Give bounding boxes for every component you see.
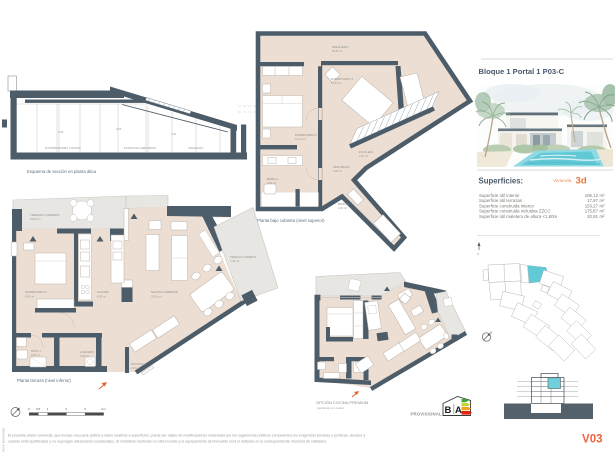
svg-text:TERRAZA CUBIERTA: TERRAZA CUBIERTA — [30, 213, 60, 217]
svg-text:B: B — [445, 405, 452, 416]
svg-text:TERRAZA CUBIERTA: TERRAZA CUBIERTA — [230, 255, 257, 259]
svg-text:COCINA: COCINA — [97, 290, 109, 294]
svg-text:2.50: 2.50 — [58, 130, 64, 134]
svg-text:MALETERO: MALETERO — [332, 45, 349, 49]
svg-text:El presente plano comercial, q: El presente plano comercial, que incluye… — [8, 434, 365, 438]
svg-text:2,43 m²: 2,43 m² — [131, 366, 140, 370]
svg-text:Vivienda: Vivienda — [553, 178, 572, 184]
svg-text:8,39 m²: 8,39 m² — [97, 295, 106, 299]
svg-text:3,28 m²: 3,28 m² — [333, 169, 342, 173]
svg-text:Superficies:: Superficies: — [479, 177, 524, 186]
svg-text:Planta terraza (nivel inferior: Planta terraza (nivel inferior) — [17, 378, 72, 383]
svg-text:3d: 3d — [576, 176, 587, 187]
svg-text:(opcional con coste): (opcional con coste) — [317, 406, 344, 410]
svg-text:7,02 m²: 7,02 m² — [230, 259, 239, 263]
svg-text:A: A — [455, 405, 462, 416]
svg-text:15,06 m²: 15,06 m² — [30, 217, 41, 221]
svg-text:V03: V03 — [582, 434, 602, 446]
svg-text:m²: m² — [600, 214, 606, 219]
svg-text:VESTIBULO: VESTIBULO — [131, 362, 146, 366]
svg-text:BAÑO 3: BAÑO 3 — [338, 201, 349, 206]
svg-text:4 m: 4 m — [101, 407, 107, 411]
svg-text:Bloque 1 Portal 1 P03-C: Bloque 1 Portal 1 P03-C — [479, 67, 565, 76]
svg-text:DORMITORIO 1: DORMITORIO 1 — [295, 133, 317, 137]
svg-text:10,24 m²: 10,24 m² — [295, 137, 306, 141]
svg-text:ESTANCIAS HABITABLES: ESTANCIAS HABITABLES — [124, 146, 156, 150]
svg-text:OPCIÓN COCINA PREMIUM: OPCIÓN COCINA PREMIUM — [316, 400, 368, 405]
svg-text:MALETERO: MALETERO — [189, 146, 204, 150]
svg-text:2.66: 2.66 — [116, 127, 122, 131]
svg-text:32,81 m²: 32,81 m² — [151, 295, 162, 299]
svg-text:Esquema de sección en planta á: Esquema de sección en planta ática — [27, 169, 97, 174]
svg-text:BAÑO 2: BAÑO 2 — [267, 176, 278, 181]
svg-text:4,40 m²: 4,40 m² — [267, 181, 276, 185]
svg-text:1.50: 1.50 — [171, 132, 177, 136]
svg-text:30,87 m²: 30,87 m² — [332, 49, 343, 53]
svg-text:P03-C V03 PLANO: P03-C V03 PLANO — [2, 427, 6, 452]
svg-text:8,56 m²: 8,56 m² — [25, 295, 34, 299]
svg-text:Planta bajo cubierta (nivel su: Planta bajo cubierta (nivel superior) — [257, 218, 325, 223]
svg-text:0,5: 0,5 — [36, 407, 41, 411]
svg-text:3,01 m²: 3,01 m² — [338, 206, 347, 210]
svg-text:ESCALERA: ESCALERA — [359, 150, 374, 154]
svg-text:DORMITORIO 2: DORMITORIO 2 — [25, 290, 47, 294]
svg-text:20,91: 20,91 — [587, 214, 598, 219]
svg-text:DORMITORIO 3: DORMITORIO 3 — [331, 77, 353, 81]
svg-text:SALÓN-COMEDOR: SALÓN-COMEDOR — [151, 289, 179, 294]
svg-text:N: N — [490, 331, 492, 335]
svg-text:VESTIBULO: VESTIBULO — [333, 165, 351, 169]
svg-text:2,87 m²: 2,87 m² — [359, 154, 368, 158]
svg-text:N: N — [477, 252, 479, 256]
svg-text:1,80 m²: 1,80 m² — [80, 354, 89, 358]
svg-text:PROVISIONAL: PROVISIONAL — [411, 412, 442, 417]
svg-text:3,05 m²: 3,05 m² — [31, 353, 40, 357]
svg-text:13,61 m²: 13,61 m² — [331, 81, 342, 85]
svg-text:cuando estén justificadas y no: cuando estén justificadas y no supongan … — [8, 440, 327, 444]
svg-text:Superficie útil maletero de al: Superficie útil maletero de altura <1,80… — [479, 214, 557, 219]
svg-text:LAVADERO: LAVADERO — [80, 350, 94, 354]
